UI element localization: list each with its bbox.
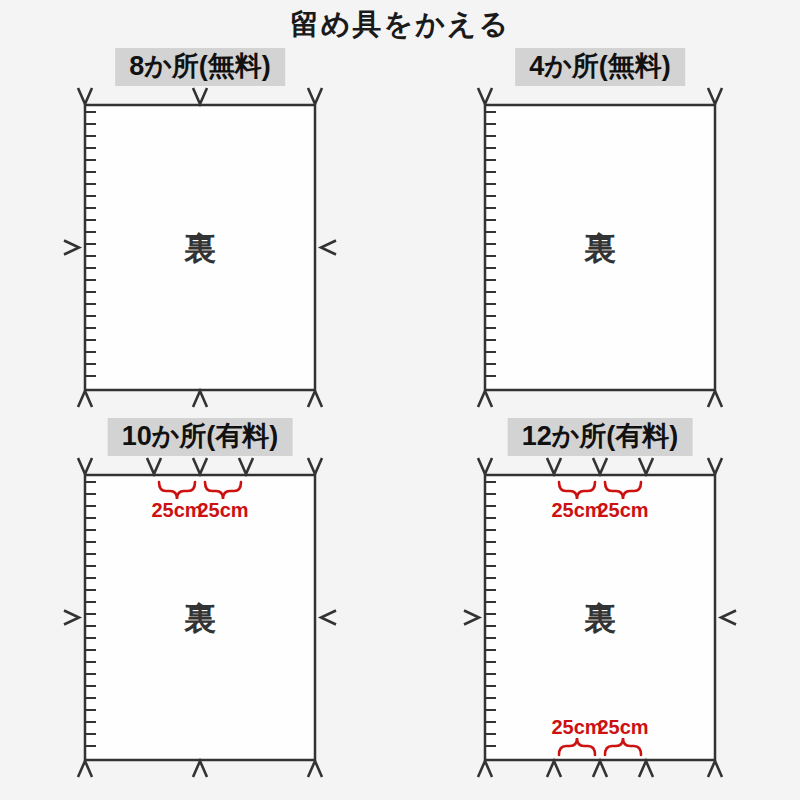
- fastener-mark-right: [321, 611, 336, 625]
- distance-label: 25cm: [197, 499, 248, 521]
- fastener-mark-bottom: [193, 761, 207, 777]
- panel-10-paid: 10か所(有料) 裏25cm25cm: [45, 418, 355, 790]
- fastener-mark-top: [547, 458, 561, 474]
- fastener-mark-top: [308, 458, 322, 474]
- fastener-mark-bottom: [308, 391, 322, 407]
- panel-10-diagram: 裏25cm25cm: [45, 455, 355, 790]
- fastener-mark-right: [321, 241, 336, 255]
- fastener-mark-top: [193, 458, 207, 474]
- fastener-mark-top: [708, 88, 722, 104]
- back-label: 裏: [184, 230, 216, 266]
- panel-12-diagram: 裏25cm25cm25cm25cm: [445, 455, 755, 790]
- fastener-mark-bottom: [308, 761, 322, 777]
- panel-10-label: 10か所(有料): [108, 418, 293, 456]
- fastener-mark-left: [64, 241, 79, 255]
- fastener-mark-bottom: [708, 391, 722, 407]
- fastener-mark-left: [464, 611, 479, 625]
- panel-4-diagram: 裏: [445, 85, 755, 420]
- fastener-mark-bottom: [78, 761, 92, 777]
- distance-label: 25cm: [597, 716, 648, 738]
- page-title: 留め具をかえる: [0, 5, 800, 45]
- fastener-mark-top: [639, 458, 653, 474]
- fastener-mark-top: [708, 458, 722, 474]
- fastener-mark-top: [78, 88, 92, 104]
- fastener-mark-top: [308, 88, 322, 104]
- fastener-mark-top: [478, 88, 492, 104]
- fastener-mark-bottom: [593, 761, 607, 777]
- panel-8-free: 8か所(無料) 裏: [45, 48, 355, 420]
- fastener-mark-bottom: [78, 391, 92, 407]
- fastener-mark-top: [478, 458, 492, 474]
- fastener-mark-top: [78, 458, 92, 474]
- distance-label: 25cm: [151, 499, 202, 521]
- fastener-mark-top: [147, 458, 161, 474]
- fastener-mark-bottom: [547, 761, 561, 777]
- fastener-mark-bottom: [639, 761, 653, 777]
- fastener-mark-left: [64, 611, 79, 625]
- fastener-mark-top: [193, 88, 207, 104]
- panel-12-paid: 12か所(有料) 裏25cm25cm25cm25cm: [445, 418, 755, 790]
- distance-label: 25cm: [551, 499, 602, 521]
- panel-4-free: 4か所(無料) 裏: [445, 48, 755, 420]
- distance-label: 25cm: [551, 716, 602, 738]
- panel-8-label: 8か所(無料): [115, 48, 285, 86]
- fastener-mark-bottom: [478, 391, 492, 407]
- fastener-mark-right: [721, 611, 736, 625]
- back-label: 裏: [184, 600, 216, 636]
- fastener-mark-bottom: [478, 761, 492, 777]
- fastener-mark-top: [593, 458, 607, 474]
- panel-12-label: 12か所(有料): [508, 418, 693, 456]
- fastener-mark-bottom: [193, 391, 207, 407]
- panel-8-diagram: 裏: [45, 85, 355, 420]
- back-label: 裏: [584, 600, 616, 636]
- fastener-mark-top: [239, 458, 253, 474]
- distance-label: 25cm: [597, 499, 648, 521]
- fastener-mark-bottom: [708, 761, 722, 777]
- panel-4-label: 4か所(無料): [515, 48, 685, 86]
- back-label: 裏: [584, 230, 616, 266]
